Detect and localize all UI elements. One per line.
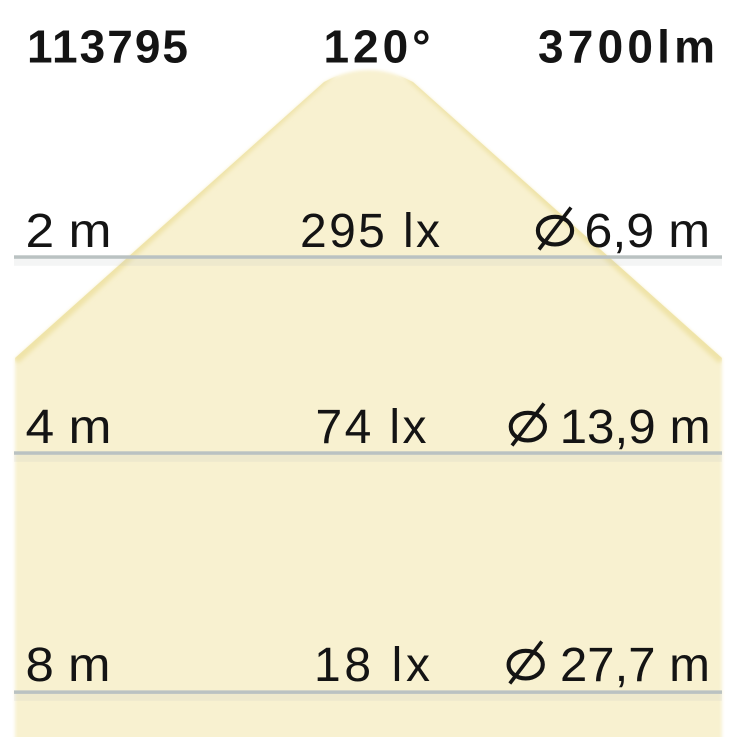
svg-text:2 m: 2 m <box>26 205 112 258</box>
svg-text:74 lx: 74 lx <box>316 401 427 454</box>
svg-text:13,9 m: 13,9 m <box>560 401 711 454</box>
svg-text:6,9 m: 6,9 m <box>584 205 710 258</box>
svg-text:113795: 113795 <box>27 21 188 73</box>
svg-text:120°: 120° <box>324 21 431 73</box>
svg-text:295 lx: 295 lx <box>300 205 440 258</box>
svg-text:8 m: 8 m <box>26 639 111 692</box>
svg-text:3700lm: 3700lm <box>538 21 715 73</box>
svg-text:4 m: 4 m <box>26 401 112 454</box>
svg-text:27,7 m: 27,7 m <box>560 639 710 692</box>
